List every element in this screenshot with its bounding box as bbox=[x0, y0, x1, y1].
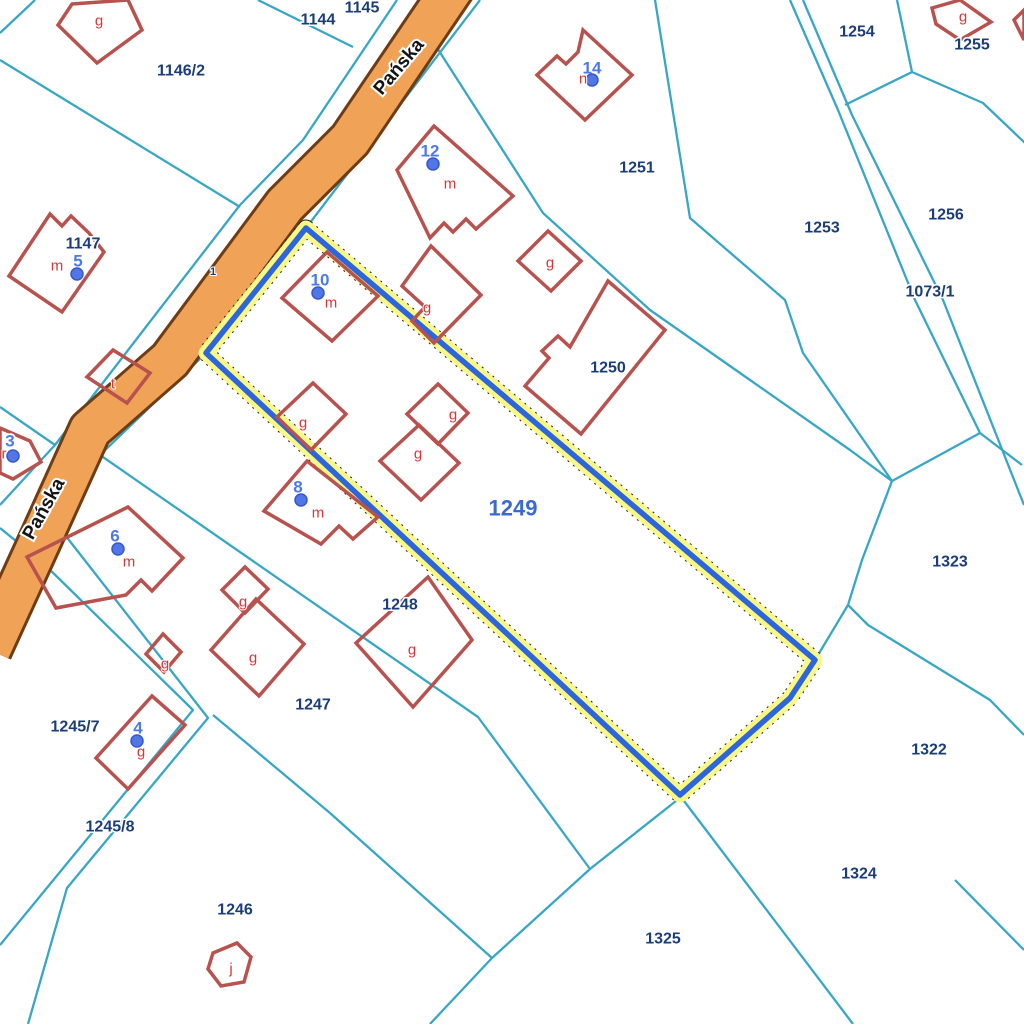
building-use-letter: r bbox=[2, 446, 7, 463]
parcel-number-label[interactable]: 1247 bbox=[295, 697, 331, 714]
building-use-letter: g bbox=[299, 415, 307, 432]
parcel-boundary-line bbox=[655, 0, 892, 481]
parcel-number-label[interactable]: 1 bbox=[210, 266, 216, 278]
parcel-number-label[interactable]: 1256 bbox=[928, 207, 964, 224]
parcel-number-label[interactable]: 1324 bbox=[841, 866, 877, 883]
parcel-number-label[interactable]: 1147 bbox=[66, 236, 101, 253]
parcel-number-label[interactable]: 1255 bbox=[954, 37, 990, 54]
parcel-boundary-line bbox=[213, 715, 492, 958]
building-use-letter: g bbox=[249, 650, 257, 667]
address-point-dot[interactable] bbox=[295, 494, 307, 506]
building-outline bbox=[407, 384, 468, 444]
parcel-boundary-line bbox=[0, 0, 35, 33]
building-use-letter: j bbox=[228, 961, 232, 978]
parcel-boundary-line bbox=[848, 605, 1024, 735]
parcel-boundary-line bbox=[803, 0, 1024, 505]
cadastral-map-canvas[interactable]: PańskaPańska114411451146/211471251125412… bbox=[0, 0, 1024, 1024]
building-outline bbox=[58, 0, 142, 63]
cadastral-map-viewport[interactable]: PańskaPańska114411451146/211471251125412… bbox=[0, 0, 1024, 1024]
building-use-letter: g bbox=[408, 642, 416, 659]
building-outline bbox=[1014, 10, 1024, 40]
address-number-label[interactable]: 12 bbox=[421, 142, 440, 161]
parcel-number-label[interactable]: 1325 bbox=[645, 931, 681, 948]
address-number-label[interactable]: 3 bbox=[5, 432, 14, 451]
building-use-letter: g bbox=[239, 594, 247, 611]
parcel-number-label[interactable]: 1144 bbox=[301, 12, 336, 29]
building-use-letter: m bbox=[51, 258, 64, 275]
address-point-dot[interactable] bbox=[7, 450, 19, 462]
parcel-number-label[interactable]: 1248 bbox=[382, 597, 418, 614]
building-use-letter: m bbox=[312, 505, 325, 522]
parcel-number-label[interactable]: 1251 bbox=[619, 160, 655, 177]
building-use-letter: m bbox=[123, 554, 136, 571]
parcel-boundary-line bbox=[897, 0, 912, 72]
building-use-letter: g bbox=[95, 13, 103, 30]
building-use-letter: m bbox=[325, 295, 338, 312]
building-outline bbox=[277, 383, 346, 450]
address-point-dot[interactable] bbox=[586, 74, 598, 86]
building-use-letter: g bbox=[423, 300, 431, 317]
parcel-number-label[interactable]: 1246 bbox=[217, 902, 253, 919]
building-outline bbox=[264, 461, 378, 544]
parcel-boundary-line bbox=[28, 526, 208, 1024]
parcel-boundary-line bbox=[892, 433, 980, 481]
address-point-dot[interactable] bbox=[71, 268, 83, 280]
building-use-letter: g bbox=[546, 255, 554, 272]
parcel-number-label[interactable]: 1073/1 bbox=[906, 284, 955, 301]
parcel-number-label[interactable]: 1254 bbox=[839, 24, 875, 41]
parcel-number-label[interactable]: 1145 bbox=[345, 0, 380, 17]
building-use-letter: g bbox=[137, 744, 145, 761]
building-use-letter: g bbox=[449, 407, 457, 424]
parcel-boundary-line bbox=[818, 605, 848, 655]
parcel-number-label[interactable]: 1146/2 bbox=[157, 63, 205, 80]
parcel-boundary-line bbox=[0, 60, 240, 207]
parcel-number-label[interactable]: 1322 bbox=[911, 742, 947, 759]
parcel-number-label[interactable]: 1250 bbox=[590, 360, 626, 377]
parcel-boundary-line bbox=[432, 40, 892, 481]
parcel-boundary-line bbox=[845, 72, 912, 105]
parcel-boundary-line bbox=[912, 72, 1024, 143]
address-point-dot[interactable] bbox=[312, 287, 324, 299]
building-outline bbox=[211, 599, 304, 696]
parcel-boundary-line bbox=[955, 880, 1024, 950]
building-use-letter: n bbox=[579, 71, 587, 88]
building-use-letter: g bbox=[161, 656, 169, 673]
parcel-number-label[interactable]: 1245/8 bbox=[86, 819, 135, 836]
parcel-boundary-line bbox=[430, 958, 492, 1024]
parcel-number-label[interactable]: 1323 bbox=[932, 554, 968, 571]
parcel-number-label[interactable]: 1245/7 bbox=[51, 719, 100, 736]
address-point-dot[interactable] bbox=[427, 158, 439, 170]
parcel-number-label[interactable]: 1253 bbox=[804, 220, 840, 237]
parcel-boundary-line bbox=[848, 481, 892, 605]
selected-parcel-number-label[interactable]: 1249 bbox=[489, 496, 538, 521]
building-use-letter: m bbox=[444, 176, 457, 193]
building-use-letter: g bbox=[414, 446, 422, 463]
parcel-boundary-line bbox=[681, 797, 853, 1024]
building-use-letter: g bbox=[959, 9, 967, 26]
